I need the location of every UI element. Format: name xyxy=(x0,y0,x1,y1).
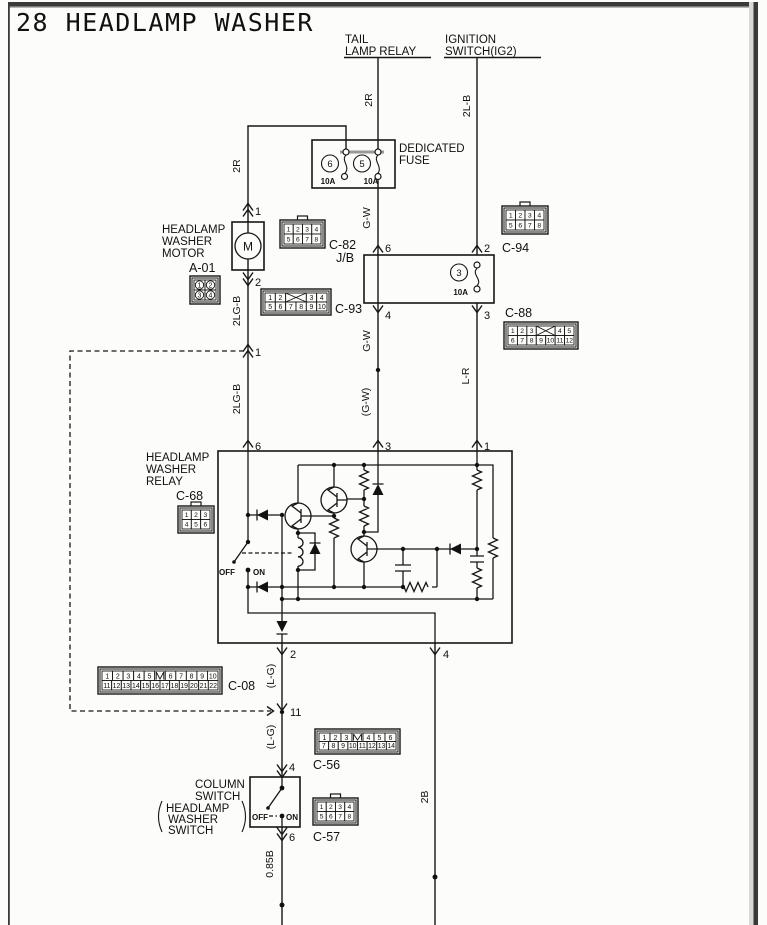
svg-text:4: 4 xyxy=(348,804,352,811)
connector-label-c57: C-57 xyxy=(313,830,340,844)
relay-junctions xyxy=(232,463,479,601)
column-switch: OFF ON COLUMN SWITCH HEADLAMP WASHER SWI… xyxy=(159,777,301,837)
relay-switch-on: ON xyxy=(253,568,265,577)
colsw-on: ON xyxy=(286,813,298,822)
svg-text:4: 4 xyxy=(558,328,562,335)
fuse-5-rating: 10A xyxy=(364,177,379,186)
dedicated-fuse-box: 6 10A 5 10A DEDICATED FUSE xyxy=(312,140,465,188)
svg-text:(L-G): (L-G) xyxy=(265,725,277,750)
svg-text:2: 2 xyxy=(255,277,261,289)
svg-text:13: 13 xyxy=(378,743,386,750)
svg-text:1: 1 xyxy=(255,206,261,218)
svg-text:7: 7 xyxy=(338,814,342,821)
svg-text:4: 4 xyxy=(137,673,141,680)
svg-text:11: 11 xyxy=(103,683,110,690)
svg-text:3: 3 xyxy=(338,804,342,811)
svg-text:5: 5 xyxy=(287,236,291,243)
svg-text:3: 3 xyxy=(345,735,349,742)
svg-text:1: 1 xyxy=(255,347,261,359)
svg-text:16: 16 xyxy=(151,683,159,690)
svg-text:9: 9 xyxy=(310,304,314,311)
svg-text:14: 14 xyxy=(132,683,140,690)
page-title: 28 HEADLAMP WASHER xyxy=(16,8,314,37)
motor-label: HEADLAMP xyxy=(162,224,226,236)
svg-text:14: 14 xyxy=(387,743,395,750)
svg-text:1: 1 xyxy=(268,295,272,302)
svg-text:5: 5 xyxy=(378,735,382,742)
svg-text:19: 19 xyxy=(180,683,188,690)
headlamp-washer-relay: HEADLAMP WASHER RELAY C-68 xyxy=(146,451,512,643)
svg-text:9: 9 xyxy=(539,338,543,345)
svg-text:L-R: L-R xyxy=(460,367,472,384)
svg-text:5: 5 xyxy=(509,222,513,229)
svg-text:3: 3 xyxy=(305,226,309,233)
svg-text:5: 5 xyxy=(148,673,152,680)
svg-text:4: 4 xyxy=(367,735,371,742)
svg-text:11: 11 xyxy=(290,707,301,719)
svg-text:WASHER: WASHER xyxy=(146,464,196,476)
svg-text:4: 4 xyxy=(537,212,541,219)
connector-icon-c57: 12345678 xyxy=(313,794,358,825)
svg-text:2: 2 xyxy=(194,512,198,519)
svg-text:11: 11 xyxy=(359,743,366,750)
svg-text:FUSE: FUSE xyxy=(399,155,430,167)
svg-text:2: 2 xyxy=(518,212,522,219)
relay-label: HEADLAMP xyxy=(146,452,210,464)
svg-text:8: 8 xyxy=(299,304,303,311)
svg-text:10: 10 xyxy=(349,743,357,750)
svg-text:20: 20 xyxy=(190,683,198,690)
svg-text:9: 9 xyxy=(200,673,204,680)
svg-text:7: 7 xyxy=(322,743,326,750)
svg-text:8: 8 xyxy=(348,814,352,821)
svg-text:10: 10 xyxy=(209,673,217,680)
svg-text:10: 10 xyxy=(547,338,555,345)
svg-text:6: 6 xyxy=(289,832,295,844)
svg-text:9: 9 xyxy=(341,743,345,750)
svg-text:1: 1 xyxy=(287,226,291,233)
svg-text:12: 12 xyxy=(566,338,574,345)
wires xyxy=(70,58,477,925)
svg-text:4: 4 xyxy=(320,295,324,302)
svg-text:G-W: G-W xyxy=(361,330,373,352)
fuse-6-rating: 10A xyxy=(321,177,336,186)
connector-label-c88: C-88 xyxy=(505,306,532,320)
svg-text:8: 8 xyxy=(332,743,336,750)
svg-text:1: 1 xyxy=(105,673,109,680)
connector-icon-c68: 123456 xyxy=(178,502,214,533)
svg-text:13: 13 xyxy=(122,683,130,690)
connector-label-c68: C-68 xyxy=(176,489,203,503)
svg-text:3: 3 xyxy=(484,310,490,322)
svg-text:4: 4 xyxy=(209,293,213,300)
junction-block: 3 10A J/B xyxy=(336,251,494,303)
svg-text:2: 2 xyxy=(334,735,338,742)
svg-text:2: 2 xyxy=(484,243,490,255)
fuse-3-number: 3 xyxy=(456,268,461,279)
svg-text:2: 2 xyxy=(116,673,120,680)
jb-label: J/B xyxy=(336,251,354,265)
svg-text:2B: 2B xyxy=(419,791,431,804)
motor-symbol: M xyxy=(243,240,253,254)
feed-label: TAIL xyxy=(345,34,369,46)
connector-icon-c88: 123456789101112 xyxy=(504,322,578,349)
svg-text:6: 6 xyxy=(518,222,522,229)
svg-text:21: 21 xyxy=(200,683,208,690)
svg-text:WASHER: WASHER xyxy=(162,236,212,248)
relay-switch-off: OFF xyxy=(219,568,235,577)
svg-text:SWITCH(IG2): SWITCH(IG2) xyxy=(445,46,517,58)
svg-text:3: 3 xyxy=(203,512,207,519)
svg-text:2LG-B: 2LG-B xyxy=(231,296,243,326)
svg-text:22: 22 xyxy=(209,683,217,690)
wiring-diagram-page: 28 HEADLAMP WASHER TAIL LAMP RELAY IGNIT… xyxy=(0,0,767,925)
connector-icon-c94: 12345678 xyxy=(502,202,548,234)
dedicated-fuse-label: DEDICATED xyxy=(399,143,465,155)
diagram-canvas: 28 HEADLAMP WASHER TAIL LAMP RELAY IGNIT… xyxy=(0,0,767,925)
fuse-3-rating: 10A xyxy=(453,288,468,297)
svg-text:1: 1 xyxy=(320,804,324,811)
svg-text:6: 6 xyxy=(385,243,391,255)
svg-text:4: 4 xyxy=(443,649,449,661)
svg-text:7: 7 xyxy=(528,222,532,229)
connector-icon-a01: 1234 xyxy=(190,276,220,304)
svg-text:MOTOR: MOTOR xyxy=(162,248,205,260)
svg-text:5: 5 xyxy=(567,328,571,335)
svg-text:8: 8 xyxy=(190,673,194,680)
svg-text:10: 10 xyxy=(318,304,326,311)
feed-ignition-switch: IGNITION SWITCH(IG2) xyxy=(444,34,541,58)
connector-label-c56: C-56 xyxy=(313,758,340,772)
svg-text:2: 2 xyxy=(329,804,333,811)
svg-text:12: 12 xyxy=(368,743,376,750)
svg-text:7: 7 xyxy=(179,673,183,680)
connector-label-a01: A-01 xyxy=(189,261,215,275)
svg-text:2L-B: 2L-B xyxy=(461,95,473,117)
connector-label-c94: C-94 xyxy=(502,241,529,255)
svg-text:SWITCH: SWITCH xyxy=(195,791,240,803)
svg-text:3: 3 xyxy=(530,328,534,335)
svg-text:4: 4 xyxy=(385,310,391,322)
svg-text:1: 1 xyxy=(323,735,327,742)
svg-text:G-W: G-W xyxy=(361,207,373,229)
svg-text:1: 1 xyxy=(511,328,515,335)
svg-text:5: 5 xyxy=(194,522,198,529)
svg-text:3: 3 xyxy=(528,212,532,219)
svg-text:4: 4 xyxy=(315,226,319,233)
svg-text:8: 8 xyxy=(530,338,534,345)
svg-text:6: 6 xyxy=(296,236,300,243)
connector-icon-c93: 12345678910 xyxy=(261,289,331,315)
fuse-5-number: 5 xyxy=(359,159,364,170)
svg-text:2: 2 xyxy=(296,226,300,233)
column-switch-label: COLUMN xyxy=(195,779,245,791)
feed-tail-lamp-relay: TAIL LAMP RELAY xyxy=(344,34,431,58)
svg-text:4: 4 xyxy=(185,522,189,529)
svg-text:3: 3 xyxy=(385,441,391,453)
wire-labels: 2R 2L-B 2R G-W 2LG-B G-W 2LG-B (G-W) L-R… xyxy=(231,93,473,878)
svg-text:2: 2 xyxy=(279,295,283,302)
svg-text:SWITCH: SWITCH xyxy=(168,825,213,837)
connector-label-c93: C-93 xyxy=(335,302,362,316)
connector-icon-c08: 12345678910111213141516171819202122 xyxy=(98,667,222,694)
svg-text:1: 1 xyxy=(509,212,513,219)
svg-text:8: 8 xyxy=(315,236,319,243)
svg-text:6: 6 xyxy=(169,673,173,680)
colsw-off: OFF xyxy=(252,813,268,822)
svg-text:3: 3 xyxy=(310,295,314,302)
svg-text:2: 2 xyxy=(520,328,524,335)
svg-text:6: 6 xyxy=(329,814,333,821)
svg-text:6: 6 xyxy=(255,441,261,453)
svg-text:2R: 2R xyxy=(363,93,375,107)
svg-text:0.85B: 0.85B xyxy=(264,850,276,877)
svg-text:6: 6 xyxy=(389,735,393,742)
connector-grids: 1234123456781234567891012345678123456789… xyxy=(98,202,578,825)
svg-text:7: 7 xyxy=(289,304,293,311)
svg-text:RELAY: RELAY xyxy=(146,476,183,488)
svg-text:12: 12 xyxy=(113,683,121,690)
svg-text:7: 7 xyxy=(520,338,524,345)
connector-label-c08: C-08 xyxy=(228,679,255,693)
svg-text:6: 6 xyxy=(279,304,283,311)
connector-label-c82: C-82 xyxy=(329,238,356,252)
svg-text:2R: 2R xyxy=(231,159,243,173)
svg-text:11: 11 xyxy=(556,338,563,345)
svg-text:18: 18 xyxy=(171,683,179,690)
svg-text:17: 17 xyxy=(161,683,169,690)
svg-text:15: 15 xyxy=(142,683,150,690)
svg-text:2: 2 xyxy=(209,283,213,290)
svg-text:7: 7 xyxy=(305,236,309,243)
svg-text:5: 5 xyxy=(268,304,272,311)
svg-text:(L-G): (L-G) xyxy=(265,664,277,689)
svg-text:1: 1 xyxy=(198,283,202,290)
svg-text:3: 3 xyxy=(198,293,202,300)
feed-label: IGNITION xyxy=(445,34,496,46)
svg-text:1: 1 xyxy=(484,441,490,453)
svg-text:5: 5 xyxy=(320,814,324,821)
connector-icon-c56: 1234567891011121314 xyxy=(315,729,400,754)
svg-text:6: 6 xyxy=(203,522,207,529)
svg-text:1: 1 xyxy=(185,512,189,519)
svg-text:(G-W): (G-W) xyxy=(360,388,372,417)
svg-text:3: 3 xyxy=(126,673,130,680)
fuse-6-number: 6 xyxy=(327,159,332,170)
svg-text:4: 4 xyxy=(289,762,295,774)
svg-text:LAMP RELAY: LAMP RELAY xyxy=(345,46,416,58)
svg-text:2LG-B: 2LG-B xyxy=(231,384,243,414)
svg-text:2: 2 xyxy=(290,649,296,661)
svg-text:8: 8 xyxy=(537,222,541,229)
svg-text:6: 6 xyxy=(511,338,515,345)
connector-icon-c82: 12345678 xyxy=(280,216,325,248)
